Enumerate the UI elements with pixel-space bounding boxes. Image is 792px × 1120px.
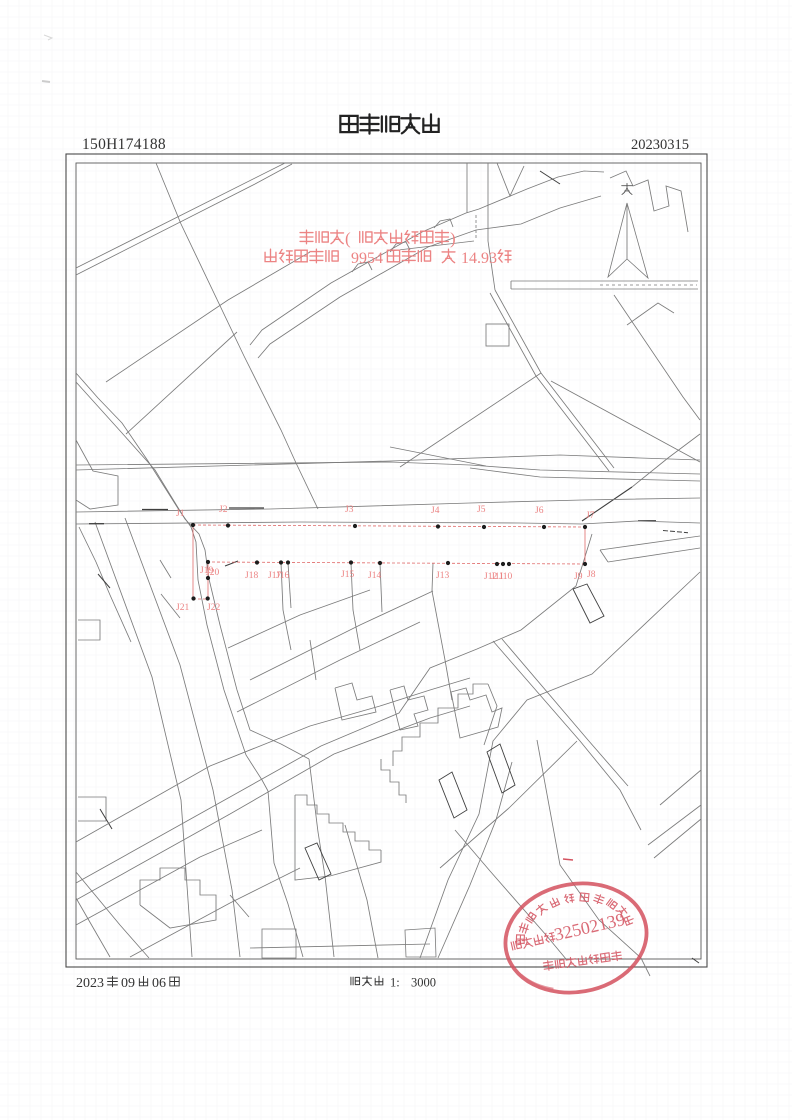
svg-text:J18: J18 xyxy=(245,571,258,581)
svg-text:J13: J13 xyxy=(436,571,449,581)
svg-text:J22: J22 xyxy=(207,603,220,613)
svg-text:J14: J14 xyxy=(368,571,381,581)
svg-text:J4: J4 xyxy=(431,506,440,516)
svg-text:20230315: 20230315 xyxy=(631,137,689,153)
svg-text:2023: 2023 xyxy=(76,976,104,991)
svg-text:J1: J1 xyxy=(176,509,185,519)
svg-text:9954: 9954 xyxy=(351,250,383,267)
svg-text:J5: J5 xyxy=(477,505,486,515)
svg-text:J2: J2 xyxy=(219,505,228,515)
svg-text:3000: 3000 xyxy=(411,976,436,990)
svg-text:J6: J6 xyxy=(535,506,544,516)
svg-text:J9: J9 xyxy=(574,572,583,582)
svg-text:J10: J10 xyxy=(499,572,512,582)
svg-text:): ) xyxy=(450,229,456,248)
svg-text:J3: J3 xyxy=(345,505,354,515)
svg-text:J15: J15 xyxy=(341,570,354,580)
svg-text:150H174188: 150H174188 xyxy=(82,136,166,153)
svg-text:06: 06 xyxy=(152,976,166,991)
svg-text:J20: J20 xyxy=(206,568,219,578)
svg-text:09: 09 xyxy=(121,976,135,991)
svg-text:J7: J7 xyxy=(586,511,595,521)
svg-text:(: ( xyxy=(345,229,351,248)
svg-text:1:: 1: xyxy=(390,976,400,990)
svg-text:14.93: 14.93 xyxy=(461,250,497,267)
svg-text:J16: J16 xyxy=(276,571,289,581)
svg-text:J21: J21 xyxy=(176,603,189,613)
svg-text:J8: J8 xyxy=(587,570,596,580)
